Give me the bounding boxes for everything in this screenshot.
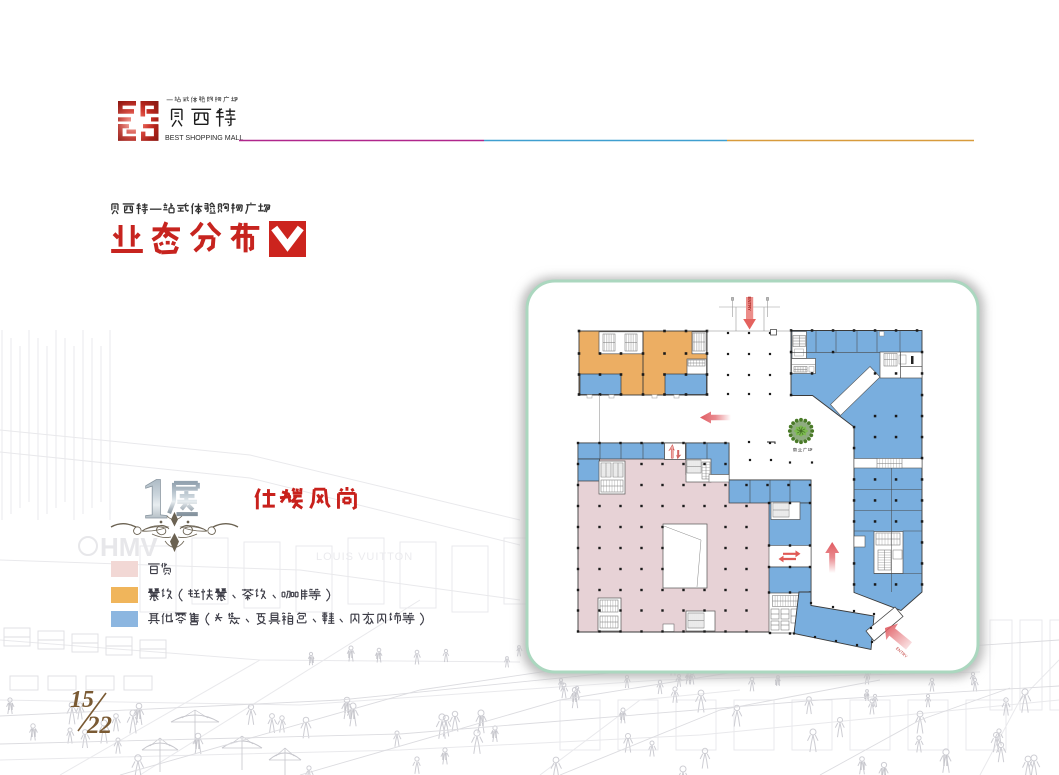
svg-text:LOUIS VUITTON: LOUIS VUITTON	[316, 551, 413, 563]
svg-text:BEST SHOPPING MALL: BEST SHOPPING MALL	[165, 134, 243, 142]
svg-text:1: 1	[141, 466, 170, 531]
svg-text:ENTRY: ENTRY	[747, 297, 752, 312]
svg-text:HMV: HMV	[100, 532, 158, 562]
svg-text:15: 15	[70, 687, 94, 713]
